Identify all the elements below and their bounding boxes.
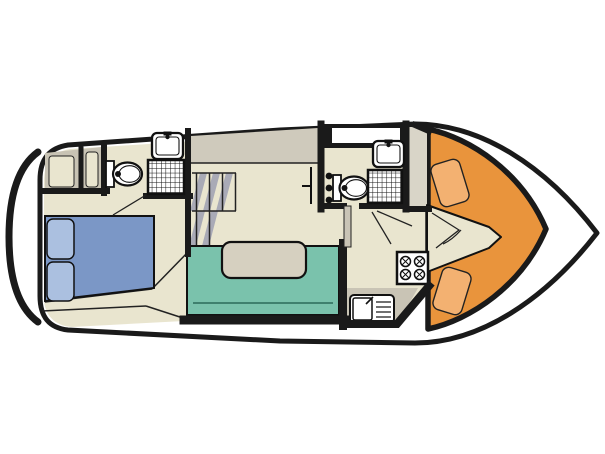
galley-stove [397,252,428,284]
pillow-bottom [47,262,74,301]
aft-bath-door-leaf [344,206,351,247]
aft-washbasin [373,140,404,168]
galley-sink [350,295,394,323]
boat-floor-plan [0,0,605,454]
forward-shower [148,160,184,194]
aft-toilet [333,175,369,201]
dinette-table [222,242,306,278]
floor-plan-canvas [0,0,605,454]
wardrobe-door-right [86,152,98,187]
door-hinge-dots [326,173,333,204]
wardrobe [45,147,102,190]
aft-shower [368,170,402,203]
cockpit-console [408,126,428,210]
double-bed [45,216,154,301]
wardrobe-door-left [49,156,74,187]
pillow-top [47,219,74,259]
forward-toilet [106,161,142,187]
forward-washbasin [152,132,183,160]
stern-bumper [9,152,38,322]
